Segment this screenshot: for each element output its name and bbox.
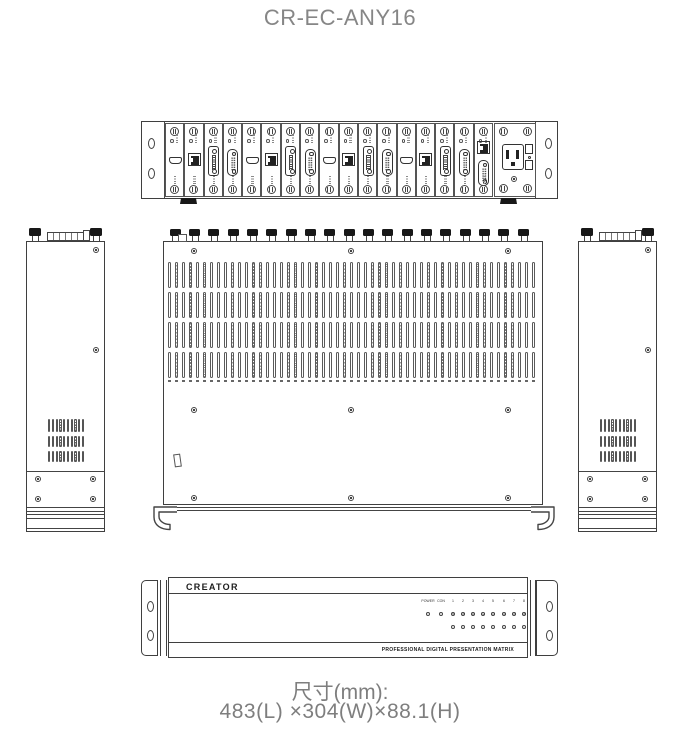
vent-dash	[273, 380, 276, 382]
vent-slot	[252, 262, 255, 288]
vent-slot	[420, 292, 423, 318]
vent-slot	[74, 436, 76, 447]
vent-slot	[322, 322, 325, 348]
vent-dash	[350, 380, 353, 382]
bezel-line	[27, 514, 104, 515]
vent-slot	[392, 262, 395, 288]
vent-slot	[189, 262, 192, 288]
rear-card-slot-hdmi	[242, 123, 261, 197]
vent-slot	[611, 451, 613, 462]
thumbscrew-icon	[325, 185, 334, 194]
led-indicator	[286, 139, 290, 143]
vent-dash	[315, 380, 318, 382]
vent-slot	[525, 262, 528, 288]
vent-dash	[266, 380, 269, 382]
vent-slot	[626, 436, 628, 447]
screw-icon	[93, 347, 99, 353]
vent-slot	[245, 262, 248, 288]
vent-slot	[59, 436, 61, 447]
chassis-foot	[180, 198, 197, 204]
vent-dash	[182, 380, 185, 382]
vent-slot	[266, 322, 269, 348]
vent-slot	[322, 262, 325, 288]
vent-dash	[364, 380, 367, 382]
side-vent-grid	[48, 419, 85, 466]
vent-slot	[329, 322, 332, 348]
vent-slot	[350, 262, 353, 288]
rear-card-slot-dvi	[281, 123, 300, 197]
vent-dash	[280, 380, 283, 382]
vent-slot	[231, 292, 234, 318]
vent-slot	[315, 262, 318, 288]
vent-row	[168, 352, 540, 378]
vent-slot	[448, 262, 451, 288]
vent-slot	[626, 419, 628, 432]
vent-slot	[238, 292, 241, 318]
vent-dash	[175, 380, 178, 382]
vent-slot	[462, 292, 465, 318]
vent-slot	[399, 322, 402, 348]
vent-slot	[441, 352, 444, 378]
vent-slot	[273, 352, 276, 378]
vent-dash	[497, 380, 500, 382]
screw-icon	[191, 407, 197, 413]
vent-slot	[604, 451, 606, 462]
vent-slot	[189, 352, 192, 378]
vent-slot	[532, 292, 535, 318]
thumbscrew-knob-icon	[247, 229, 258, 236]
vent-slot	[63, 451, 65, 462]
thumbscrew-icon	[363, 185, 372, 194]
vent-slot	[378, 292, 381, 318]
vent-slot	[273, 322, 276, 348]
vent-slot	[427, 262, 430, 288]
thumbscrew-icon	[402, 185, 411, 194]
thumbscrew-knob-icon	[344, 229, 355, 236]
led-indicator	[461, 625, 466, 630]
dvi-port-icon	[285, 146, 296, 176]
vent-slot	[78, 451, 80, 462]
vent-dash	[238, 380, 241, 382]
port-label-text	[407, 135, 409, 144]
vent-slot	[238, 262, 241, 288]
screw-icon	[645, 347, 651, 353]
vent-slot	[294, 352, 297, 378]
led-indicator	[426, 612, 431, 617]
bezel-line	[579, 514, 656, 515]
vent-slot	[483, 292, 486, 318]
front-footer-text: PROFESSIONAL DIGITAL PRESENTATION MATRIX	[382, 647, 514, 653]
vent-slot	[217, 322, 220, 348]
vent-slot	[350, 322, 353, 348]
vga-port-icon	[305, 149, 316, 176]
vent-dash	[224, 380, 227, 382]
vent-slot	[224, 322, 227, 348]
vent-slot	[455, 352, 458, 378]
vent-slot	[448, 322, 451, 348]
vent-slot	[634, 451, 636, 462]
front-panel-view: CREATOR POWERCON12345678910111213141516 …	[141, 577, 558, 658]
vent-slot	[315, 322, 318, 348]
vent-slot	[245, 292, 248, 318]
hdmi-port-icon	[246, 157, 259, 164]
thumbscrew-knob-icon	[324, 229, 335, 236]
bezel-line	[27, 507, 104, 508]
vent-slot	[615, 436, 617, 447]
led-indicator	[459, 139, 463, 143]
port-label-text	[446, 135, 448, 144]
vent-slot	[483, 322, 486, 348]
vent-slot	[217, 352, 220, 378]
vent-slot	[175, 352, 178, 378]
vent-row	[48, 419, 85, 432]
vent-row	[168, 292, 540, 318]
led-indicator	[512, 625, 517, 630]
rear-card-slot-vga	[454, 123, 473, 197]
vent-slot	[615, 451, 617, 462]
port-label-text	[214, 135, 216, 144]
rack-ear-hole	[148, 168, 155, 179]
vent-slot	[343, 292, 346, 318]
vent-slot	[611, 436, 613, 447]
vent-slot	[392, 352, 395, 378]
vent-slot	[301, 352, 304, 378]
vent-slot	[518, 352, 521, 378]
thumbscrew-knob-icon	[581, 228, 593, 236]
vent-slot	[343, 262, 346, 288]
vent-slot	[329, 262, 332, 288]
led-indicator	[440, 139, 444, 143]
vent-slot	[350, 292, 353, 318]
vent-slot	[532, 322, 535, 348]
thumbscrew-knob-icon	[382, 229, 393, 236]
vent-slot	[287, 352, 290, 378]
vent-slot	[378, 262, 381, 288]
power-switch-icon	[525, 160, 533, 170]
vent-slot	[168, 262, 171, 288]
rj45-port-icon	[342, 153, 355, 166]
vent-slot	[168, 322, 171, 348]
vent-slot	[399, 352, 402, 378]
vent-slot	[634, 419, 636, 432]
connector-profile-icon	[83, 230, 90, 241]
vent-slot	[476, 262, 479, 288]
vent-dash	[490, 380, 493, 382]
vent-slot	[189, 292, 192, 318]
rear-card-slot-rj45	[261, 123, 280, 197]
vent-slot	[623, 419, 625, 432]
vent-slot	[406, 322, 409, 348]
vent-slot	[175, 322, 178, 348]
vent-slot	[231, 262, 234, 288]
vent-slot	[600, 419, 602, 432]
top-edge-detail	[178, 234, 187, 242]
vent-slot	[399, 262, 402, 288]
vent-slot	[196, 262, 199, 288]
led-indicator	[305, 139, 309, 143]
rack-ear-hole	[147, 601, 154, 612]
front-face: CREATOR POWERCON12345678910111213141516 …	[168, 577, 528, 658]
port-label-text	[465, 135, 467, 144]
port-label-text	[176, 135, 178, 144]
vent-slot	[469, 262, 472, 288]
hdmi-port-icon	[400, 157, 413, 164]
vent-slot	[504, 322, 507, 348]
vent-slot	[182, 292, 185, 318]
vent-row	[168, 322, 540, 348]
vent-slot	[217, 292, 220, 318]
vent-dash	[518, 380, 521, 382]
rear-card-slot-hdmi	[397, 123, 416, 197]
vent-slot	[504, 262, 507, 288]
vent-slot	[483, 262, 486, 288]
vent-slot	[59, 419, 61, 432]
vent-slot	[490, 352, 493, 378]
vent-dash	[434, 380, 437, 382]
vent-slot	[329, 352, 332, 378]
screw-icon	[348, 248, 354, 254]
vent-slot	[74, 451, 76, 462]
vent-slot	[301, 322, 304, 348]
screw-icon	[191, 495, 197, 501]
thumbscrew-knob-icon	[228, 229, 239, 236]
screw-icon	[35, 476, 41, 482]
vent-slot	[224, 262, 227, 288]
vent-slot	[71, 419, 73, 432]
vent-dash	[441, 380, 444, 382]
vent-slot	[378, 352, 381, 378]
vent-slot	[336, 352, 339, 378]
vent-slot	[210, 262, 213, 288]
vent-slot	[623, 451, 625, 462]
vent-slot	[245, 322, 248, 348]
rear-card-slot-dvi	[358, 123, 377, 197]
vent-dash	[378, 380, 381, 382]
vent-slot	[630, 419, 632, 432]
bezel-line	[27, 511, 104, 512]
dvi-port-icon	[363, 146, 374, 176]
vent-slot	[518, 292, 521, 318]
vent-slot	[525, 322, 528, 348]
vent-slot	[427, 352, 430, 378]
rear-card-slot-rj45	[184, 123, 203, 197]
vent-slot	[604, 419, 606, 432]
side-panel-view-right	[578, 228, 657, 532]
vent-slot	[532, 352, 535, 378]
vent-slot	[476, 292, 479, 318]
led-indicator	[471, 625, 476, 630]
port-label-text	[311, 135, 313, 144]
vent-slot	[52, 436, 54, 447]
vent-slot	[52, 419, 54, 432]
vent-slot	[336, 262, 339, 288]
bezel-line	[579, 507, 656, 508]
vent-slot	[434, 292, 437, 318]
top-vent-dashes	[168, 380, 535, 382]
vent-slot	[385, 322, 388, 348]
vent-slot	[48, 419, 50, 432]
vent-dash	[406, 380, 409, 382]
screw-icon	[90, 476, 96, 482]
vent-slot	[175, 292, 178, 318]
rj45-port-icon	[265, 153, 278, 166]
vent-dash	[462, 380, 465, 382]
vent-slot	[280, 322, 283, 348]
rear-panel-view	[141, 121, 558, 199]
vent-slot	[308, 292, 311, 318]
vent-slot	[315, 352, 318, 378]
vent-dash	[168, 380, 171, 382]
vent-row	[600, 451, 637, 462]
vent-slot	[217, 262, 220, 288]
top-vent-area	[168, 262, 540, 382]
led-indicator	[421, 139, 425, 143]
port-label-text	[292, 135, 294, 144]
vent-slot	[266, 292, 269, 318]
vent-slot	[630, 451, 632, 462]
technical-drawing: CR-EC-ANY16	[0, 0, 680, 730]
vent-slot	[413, 292, 416, 318]
vent-slot	[434, 352, 437, 378]
vent-slot	[59, 451, 61, 462]
vent-slot	[308, 352, 311, 378]
port-label-text	[369, 135, 371, 144]
vent-slot	[259, 262, 262, 288]
rear-card-slot-hdmi	[165, 123, 184, 197]
vent-slot	[252, 292, 255, 318]
vent-slot	[434, 262, 437, 288]
vent-slot	[322, 292, 325, 318]
vent-slot	[78, 419, 80, 432]
vent-slot	[329, 292, 332, 318]
vent-slot	[619, 419, 621, 432]
vent-slot	[497, 322, 500, 348]
thumbscrew-knob-icon	[498, 229, 509, 236]
thumbscrew-knob-icon	[208, 229, 219, 236]
vent-slot	[259, 292, 262, 318]
vent-dash	[322, 380, 325, 382]
thumbscrew-icon	[189, 185, 198, 194]
vent-slot	[82, 436, 84, 447]
thumbscrew-knob-icon	[90, 228, 102, 236]
vent-slot	[469, 352, 472, 378]
vent-slot	[371, 292, 374, 318]
vent-slot	[406, 352, 409, 378]
vent-slot	[315, 292, 318, 318]
vent-slot	[259, 322, 262, 348]
vent-dash	[532, 380, 535, 382]
port-label-text	[234, 135, 236, 144]
vent-slot	[476, 322, 479, 348]
screw-icon	[348, 407, 354, 413]
bezel-strip	[530, 580, 536, 656]
vent-slot	[364, 262, 367, 288]
vent-slot	[385, 262, 388, 288]
vent-slot	[238, 352, 241, 378]
vent-dash	[308, 380, 311, 382]
vent-dash	[217, 380, 220, 382]
front-bezel-lip	[177, 507, 531, 512]
vent-slot	[504, 292, 507, 318]
vent-slot	[67, 436, 69, 447]
led-indicator	[344, 139, 348, 143]
thumbscrew-icon	[499, 184, 508, 193]
vent-slot	[427, 322, 430, 348]
vent-slot	[497, 292, 500, 318]
vent-dash	[259, 380, 262, 382]
vent-dash	[399, 380, 402, 382]
vent-slot	[532, 262, 535, 288]
rear-card-slots	[165, 123, 493, 197]
side-panel-face	[26, 241, 105, 532]
vent-slot	[448, 352, 451, 378]
vent-slot	[71, 451, 73, 462]
bezel-line	[579, 518, 656, 519]
vent-slot	[476, 352, 479, 378]
rack-ear-hole	[147, 630, 154, 641]
thumbscrew-icon	[421, 185, 430, 194]
vent-slot	[413, 322, 416, 348]
thumbscrew-icon	[170, 185, 179, 194]
vent-slot	[441, 262, 444, 288]
vent-dash	[392, 380, 395, 382]
port-label-text	[272, 135, 274, 144]
screw-icon	[587, 476, 593, 482]
vent-slot	[619, 451, 621, 462]
led-indicator	[363, 139, 367, 143]
vent-slot	[364, 292, 367, 318]
led-indicator	[247, 139, 251, 143]
vent-slot	[252, 322, 255, 348]
vent-slot	[287, 322, 290, 348]
vent-slot	[483, 352, 486, 378]
vent-slot	[210, 352, 213, 378]
vent-slot	[182, 352, 185, 378]
vent-slot	[273, 292, 276, 318]
vent-slot	[168, 292, 171, 318]
vent-dash	[511, 380, 514, 382]
led-indicator	[382, 139, 386, 143]
rack-ear-hole	[545, 138, 552, 149]
bezel-line	[27, 518, 104, 519]
vent-slot	[82, 451, 84, 462]
vent-slot	[308, 262, 311, 288]
vent-slot	[71, 436, 73, 447]
thumbscrew-icon	[228, 185, 237, 194]
thumbscrew-icon	[499, 127, 508, 136]
led-indicator	[228, 139, 232, 143]
thumbscrew-knob-icon	[29, 228, 41, 236]
vent-slot	[280, 352, 283, 378]
vent-slot	[210, 322, 213, 348]
bezel-line	[579, 511, 656, 512]
vent-dash	[371, 380, 374, 382]
vent-slot	[78, 436, 80, 447]
screw-icon	[587, 496, 593, 502]
vent-slot	[210, 292, 213, 318]
thumbscrew-knob-icon	[363, 229, 374, 236]
rear-card-slot-dvi	[204, 123, 223, 197]
bezel-line	[27, 528, 104, 529]
side-panel-face	[578, 241, 657, 532]
vent-slot	[63, 436, 65, 447]
led-label: POWER	[421, 599, 435, 603]
vent-slot	[504, 352, 507, 378]
rack-ear	[536, 580, 558, 656]
vent-slot	[364, 352, 367, 378]
fuse-holder-icon	[525, 144, 533, 154]
thumbscrew-knob-icon	[518, 229, 529, 236]
